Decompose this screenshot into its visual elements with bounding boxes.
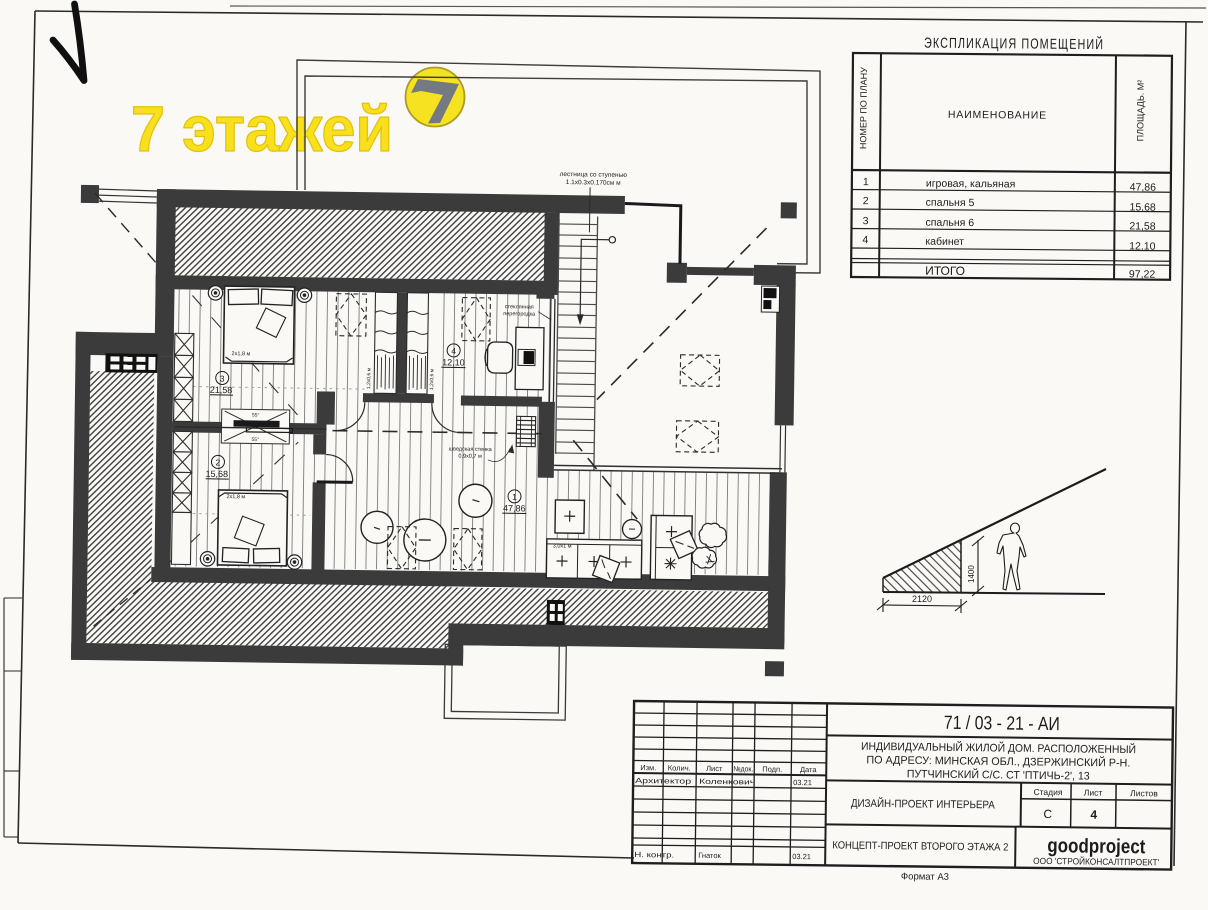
svg-text:2х1,8 м: 2х1,8 м xyxy=(226,494,245,500)
svg-text:4: 4 xyxy=(451,346,456,356)
svg-text:Формат А3: Формат А3 xyxy=(901,871,949,883)
svg-text:4: 4 xyxy=(862,234,868,246)
svg-text:ПУТЧИНСКИЙ С/С. СТ 'ПТИЧЬ-2: ПУТЧИНСКИЙ С/С. СТ 'ПТИЧЬ-2', 13 xyxy=(907,767,1090,782)
svg-text:ЭКСПЛИКАЦИЯ ПОМЕЩЕНИЙ: ЭКСПЛИКАЦИЯ ПОМЕЩЕНИЙ xyxy=(924,34,1104,54)
svg-text:03.21: 03.21 xyxy=(793,778,812,787)
svg-text:4: 4 xyxy=(1090,808,1097,822)
svg-text:игровая, кальяная: игровая, кальяная xyxy=(926,178,1016,191)
svg-text:7 этажей: 7 этажей xyxy=(131,93,393,165)
svg-text:Лист: Лист xyxy=(1084,788,1103,798)
svg-text:НАИМЕНОВАНИЕ: НАИМЕНОВАНИЕ xyxy=(948,109,1047,122)
svg-text:ИТОГО: ИТОГО xyxy=(925,264,965,278)
svg-text:1: 1 xyxy=(512,492,517,502)
svg-text:1,2х0,6 м: 1,2х0,6 м xyxy=(366,367,372,389)
svg-text:шведская стенка: шведская стенка xyxy=(449,446,493,453)
svg-text:Гнаток: Гнаток xyxy=(698,851,721,860)
svg-text:3: 3 xyxy=(863,215,869,227)
svg-text:перегородка: перегородка xyxy=(503,311,536,317)
svg-text:ООО 'СТРОЙКОНСАЛТПРОЕКТ': ООО 'СТРОЙКОНСАЛТПРОЕКТ' xyxy=(1033,855,1159,868)
svg-text:3,0х1 м: 3,0х1 м xyxy=(553,543,572,549)
svg-text:Колич.: Колич. xyxy=(668,763,691,772)
svg-text:Подп.: Подп. xyxy=(762,765,782,774)
svg-text:№док.: №док. xyxy=(733,764,753,773)
svg-text:0,9х0,7 м: 0,9х0,7 м xyxy=(458,454,482,460)
svg-text:71 / 03 - 21 - АИ: 71 / 03 - 21 - АИ xyxy=(944,713,1060,735)
svg-text:97,22: 97,22 xyxy=(1129,268,1156,280)
svg-text:2: 2 xyxy=(216,457,221,467)
svg-text:2х1,8 м: 2х1,8 м xyxy=(232,351,251,357)
svg-text:Архитектор: Архитектор xyxy=(635,776,691,786)
svg-text:12,10: 12,10 xyxy=(1129,240,1156,252)
svg-text:goodproject: goodproject xyxy=(1047,835,1146,858)
svg-text:спальня 5: спальня 5 xyxy=(926,197,975,209)
svg-text:55°: 55° xyxy=(251,437,259,443)
svg-text:15,68: 15,68 xyxy=(205,469,228,479)
svg-text:2120: 2120 xyxy=(912,594,932,604)
svg-text:ДИЗАЙН-ПРОЕКТ ИНТЕРЬЕРА: ДИЗАЙН-ПРОЕКТ ИНТЕРЬЕРА xyxy=(851,797,996,812)
svg-text:Изм.: Изм. xyxy=(640,763,656,772)
svg-text:2: 2 xyxy=(863,195,869,207)
svg-text:03.21: 03.21 xyxy=(792,852,811,861)
svg-text:55°: 55° xyxy=(252,412,260,418)
svg-text:НОМЕР ПО ПЛАНУ: НОМЕР ПО ПЛАНУ xyxy=(858,67,869,149)
svg-text:стеклянная: стеклянная xyxy=(505,304,534,310)
svg-text:47,86: 47,86 xyxy=(503,503,526,513)
svg-text:С: С xyxy=(1043,807,1052,821)
svg-text:21,58: 21,58 xyxy=(210,385,233,395)
svg-text:1400: 1400 xyxy=(967,565,976,583)
svg-text:15,68: 15,68 xyxy=(1129,201,1156,213)
svg-text:12,10: 12,10 xyxy=(442,357,465,367)
svg-text:Н. контр.: Н. контр. xyxy=(634,850,674,859)
svg-text:1,2х0,6 м: 1,2х0,6 м xyxy=(429,368,435,390)
svg-text:1.1х0.3х0.170см м: 1.1х0.3х0.170см м xyxy=(566,179,621,187)
svg-text:Листов: Листов xyxy=(1130,788,1158,798)
svg-text:3: 3 xyxy=(220,373,225,383)
svg-text:Коленкович: Коленкович xyxy=(699,777,755,787)
svg-text:КОНЦЕПТ-ПРОЕКТ ВТОРОГО ЭТАЖА: КОНЦЕПТ-ПРОЕКТ ВТОРОГО ЭТАЖА 2 xyxy=(832,839,1008,853)
svg-text:Стадия: Стадия xyxy=(1033,787,1062,797)
svg-text:лестница со ступенью: лестница со ступенью xyxy=(560,171,628,179)
svg-text:кабинет: кабинет xyxy=(925,236,964,248)
svg-text:Лист: Лист xyxy=(706,764,723,773)
svg-text:Дата: Дата xyxy=(800,765,818,774)
svg-text:ПЛОЩАДЬ. М²: ПЛОЩАДЬ. М² xyxy=(1135,80,1146,142)
svg-text:спальня 6: спальня 6 xyxy=(925,217,974,229)
svg-text:21,58: 21,58 xyxy=(1129,220,1156,232)
svg-text:1: 1 xyxy=(863,176,869,188)
svg-text:47,86: 47,86 xyxy=(1130,181,1157,193)
